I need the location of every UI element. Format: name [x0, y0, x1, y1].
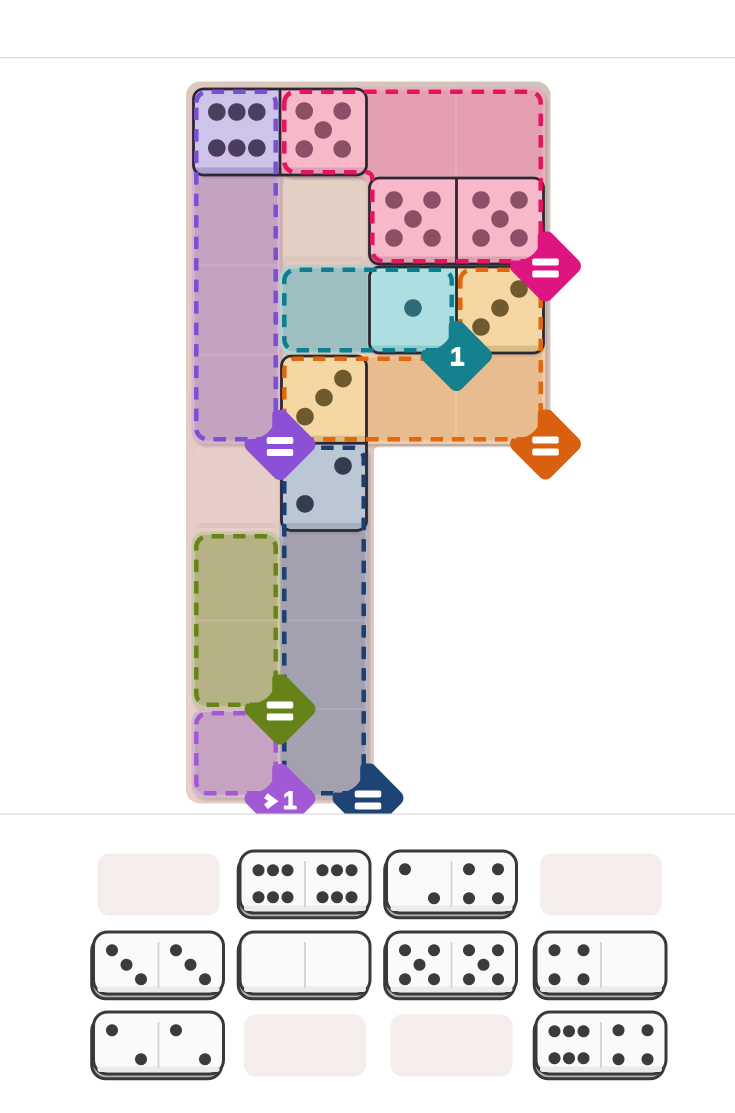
svg-text:1: 1: [450, 341, 464, 371]
svg-text:1: 1: [283, 787, 297, 815]
